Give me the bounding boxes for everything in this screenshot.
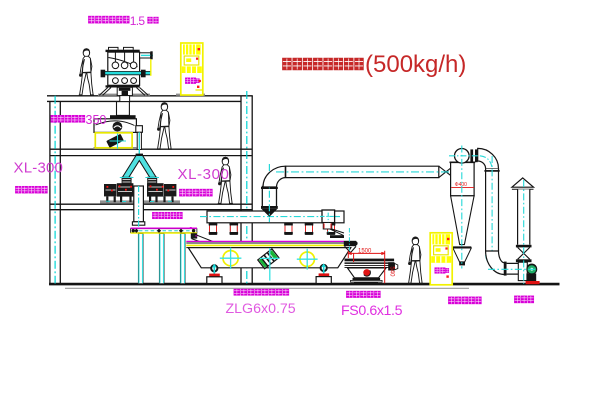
svg-text:(500kg/h): (500kg/h) (365, 51, 466, 78)
svg-text:XL-300: XL-300 (14, 160, 64, 177)
svg-text:1500: 1500 (358, 249, 372, 255)
svg-text:ZLG6x0.75: ZLG6x0.75 (226, 301, 296, 317)
svg-text:Φ400: Φ400 (455, 182, 468, 188)
svg-text:FS0.6x1.5: FS0.6x1.5 (341, 303, 403, 319)
svg-text:350: 350 (86, 113, 107, 127)
svg-text:1.5: 1.5 (130, 14, 146, 28)
svg-text:XL-300: XL-300 (178, 166, 230, 183)
svg-text:540: 540 (389, 266, 395, 277)
